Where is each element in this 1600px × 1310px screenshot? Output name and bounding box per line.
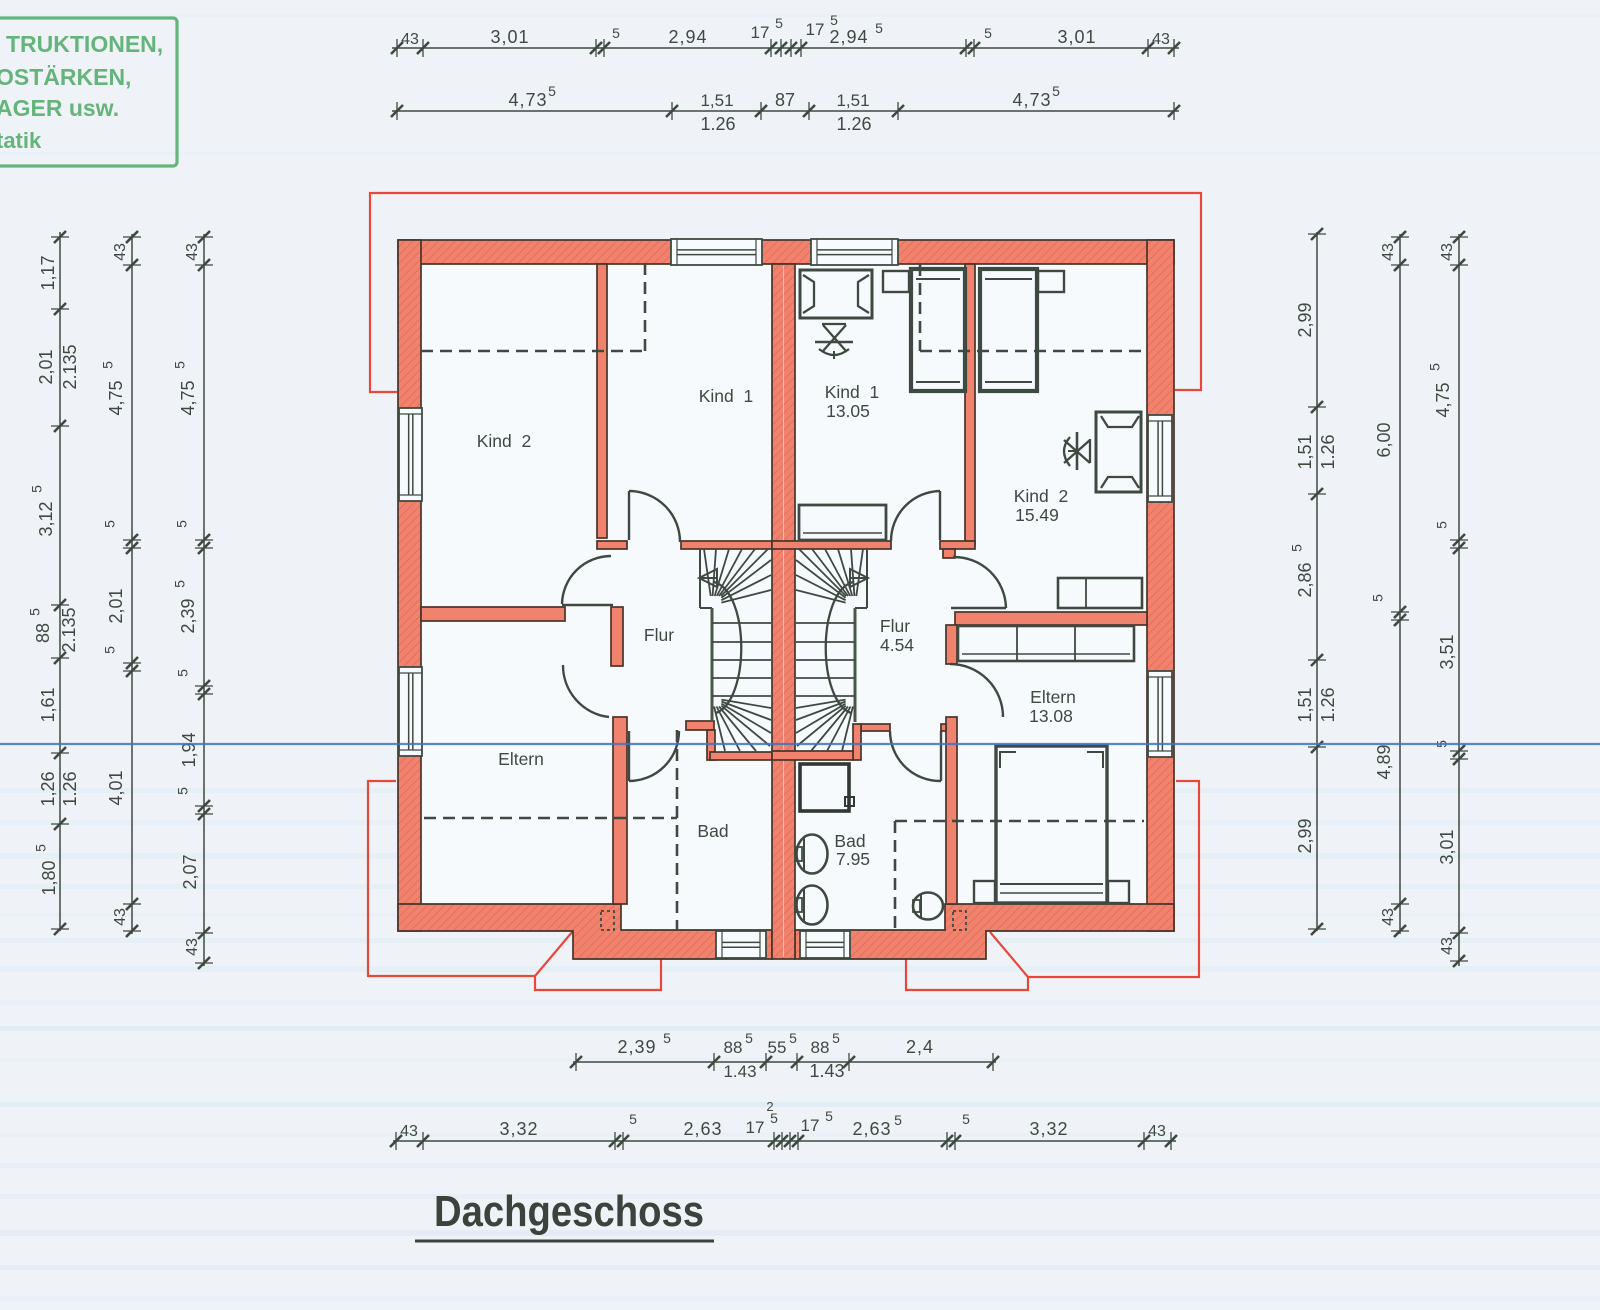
svg-text:5: 5 — [175, 669, 191, 677]
svg-text:1.26: 1.26 — [836, 114, 871, 134]
svg-text:2,99: 2,99 — [1295, 818, 1315, 853]
svg-text:43: 43 — [401, 31, 419, 48]
svg-text:43: 43 — [112, 908, 129, 926]
svg-text:5: 5 — [1434, 521, 1450, 529]
svg-text:Eltern: Eltern — [1030, 687, 1076, 707]
svg-text:2: 2 — [766, 1099, 773, 1114]
svg-text:5: 5 — [172, 580, 188, 588]
svg-text:5: 5 — [100, 361, 116, 369]
svg-text:43: 43 — [1380, 243, 1397, 261]
svg-text:2,94: 2,94 — [829, 27, 868, 47]
svg-text:2,01: 2,01 — [106, 588, 126, 623]
svg-text:1.26: 1.26 — [1318, 687, 1338, 722]
svg-text:5: 5 — [962, 1111, 970, 1127]
svg-text:tatik: tatik — [0, 128, 42, 153]
svg-text:Flur: Flur — [644, 625, 674, 645]
svg-text:5: 5 — [830, 12, 838, 28]
svg-text:3,51: 3,51 — [1437, 634, 1457, 669]
svg-text:2.135: 2.135 — [60, 344, 80, 389]
svg-text:1,51: 1,51 — [700, 91, 733, 110]
svg-text:1,26: 1,26 — [38, 771, 58, 806]
svg-text:43: 43 — [1148, 1123, 1166, 1140]
svg-text:4,01: 4,01 — [106, 770, 126, 805]
svg-text:Kind 1: Kind 1 — [699, 386, 753, 406]
svg-text:Dachgeschoss: Dachgeschoss — [434, 1187, 704, 1236]
svg-text:43: 43 — [184, 938, 201, 956]
svg-text:88: 88 — [33, 623, 53, 643]
svg-text:TRUKTIONEN,: TRUKTIONEN, — [6, 31, 163, 57]
svg-text:4,73: 4,73 — [1012, 90, 1051, 110]
svg-text:4,89: 4,89 — [1374, 744, 1394, 779]
svg-text:5: 5 — [745, 1030, 753, 1046]
svg-text:88: 88 — [724, 1038, 743, 1057]
svg-text:5: 5 — [548, 83, 556, 99]
svg-text:AGER usw.: AGER usw. — [0, 95, 119, 121]
svg-text:5: 5 — [629, 1111, 637, 1127]
svg-text:2,86: 2,86 — [1295, 562, 1315, 597]
svg-text:15.49: 15.49 — [1015, 505, 1059, 525]
svg-text:2,63: 2,63 — [683, 1119, 722, 1139]
svg-text:87: 87 — [775, 90, 795, 110]
svg-text:5: 5 — [172, 361, 188, 369]
svg-text:5: 5 — [174, 520, 190, 528]
svg-text:43: 43 — [400, 1123, 418, 1140]
svg-text:4,75: 4,75 — [106, 380, 126, 415]
svg-text:5: 5 — [775, 15, 783, 31]
svg-text:4,75: 4,75 — [1433, 382, 1453, 417]
svg-text:3,12: 3,12 — [36, 501, 56, 536]
svg-text:3,32: 3,32 — [499, 1119, 538, 1139]
svg-text:4,73: 4,73 — [508, 90, 547, 110]
svg-text:1,61: 1,61 — [38, 687, 58, 722]
svg-text:4,75: 4,75 — [178, 380, 198, 415]
svg-text:17: 17 — [806, 20, 825, 39]
svg-text:Kind 1: Kind 1 — [825, 382, 879, 402]
svg-text:Kind 2: Kind 2 — [477, 431, 531, 451]
svg-text:5: 5 — [612, 25, 620, 41]
svg-text:2,39: 2,39 — [178, 598, 198, 633]
svg-text:3,01: 3,01 — [1437, 829, 1457, 864]
svg-text:1.26: 1.26 — [1318, 434, 1338, 469]
svg-text:5: 5 — [894, 1112, 902, 1128]
svg-text:3,32: 3,32 — [1029, 1119, 1068, 1139]
svg-text:43: 43 — [184, 243, 201, 261]
svg-text:5: 5 — [1370, 594, 1386, 602]
svg-text:5: 5 — [102, 646, 118, 654]
svg-text:Flur: Flur — [880, 616, 910, 636]
svg-text:2,39: 2,39 — [617, 1037, 656, 1057]
svg-text:5: 5 — [875, 20, 883, 36]
svg-text:17: 17 — [801, 1116, 820, 1135]
svg-text:17: 17 — [746, 1118, 765, 1137]
svg-text:3,01: 3,01 — [1057, 27, 1096, 47]
svg-text:88: 88 — [811, 1038, 830, 1057]
svg-text:2,07: 2,07 — [180, 854, 200, 889]
svg-text:1,51: 1,51 — [1295, 434, 1315, 469]
svg-text:6,00: 6,00 — [1374, 422, 1394, 457]
svg-text:13.05: 13.05 — [826, 401, 870, 421]
svg-text:5: 5 — [663, 1030, 671, 1046]
svg-text:1.43: 1.43 — [723, 1062, 756, 1081]
svg-text:Bad: Bad — [834, 831, 865, 851]
svg-text:1,17: 1,17 — [38, 255, 58, 290]
svg-text:13.08: 13.08 — [1029, 706, 1073, 726]
svg-text:4.54: 4.54 — [880, 635, 914, 655]
svg-text:Kind 2: Kind 2 — [1014, 486, 1068, 506]
svg-text:5: 5 — [789, 1030, 797, 1046]
svg-text:5: 5 — [27, 608, 43, 616]
svg-text:2,99: 2,99 — [1295, 302, 1315, 337]
svg-text:43: 43 — [1439, 243, 1456, 261]
svg-text:17: 17 — [751, 23, 770, 42]
svg-text:5: 5 — [832, 1030, 840, 1046]
svg-text:5: 5 — [29, 485, 45, 493]
svg-text:5: 5 — [984, 25, 992, 41]
svg-text:5: 5 — [1427, 363, 1443, 371]
svg-text:1,51: 1,51 — [836, 91, 869, 110]
svg-text:5: 5 — [175, 787, 191, 795]
svg-text:5: 5 — [825, 1108, 833, 1124]
svg-text:43: 43 — [112, 243, 129, 261]
svg-text:43: 43 — [1152, 31, 1170, 48]
svg-text:1,51: 1,51 — [1295, 687, 1315, 722]
svg-text:2.135: 2.135 — [59, 607, 79, 652]
svg-text:1.43: 1.43 — [809, 1061, 844, 1081]
svg-text:2,63: 2,63 — [852, 1119, 891, 1139]
svg-text:7.95: 7.95 — [836, 849, 870, 869]
svg-text:5: 5 — [33, 844, 49, 852]
svg-text:1.26: 1.26 — [60, 771, 80, 806]
svg-text:3,01: 3,01 — [490, 27, 529, 47]
svg-text:5: 5 — [102, 520, 118, 528]
svg-text:1.26: 1.26 — [700, 114, 735, 134]
svg-text:1,94: 1,94 — [179, 732, 199, 767]
svg-text:43: 43 — [1380, 908, 1397, 926]
svg-text:2,4: 2,4 — [906, 1037, 934, 1057]
svg-text:OSTÄRKEN,: OSTÄRKEN, — [0, 64, 131, 90]
svg-text:1,80: 1,80 — [39, 860, 59, 895]
svg-text:2,94: 2,94 — [668, 27, 707, 47]
svg-text:Bad: Bad — [697, 821, 728, 841]
svg-text:5: 5 — [1289, 544, 1305, 552]
svg-text:43: 43 — [1439, 937, 1456, 955]
svg-text:55: 55 — [768, 1038, 787, 1057]
svg-text:Eltern: Eltern — [498, 749, 544, 769]
svg-text:2,01: 2,01 — [36, 349, 56, 384]
svg-text:5: 5 — [1052, 83, 1060, 99]
